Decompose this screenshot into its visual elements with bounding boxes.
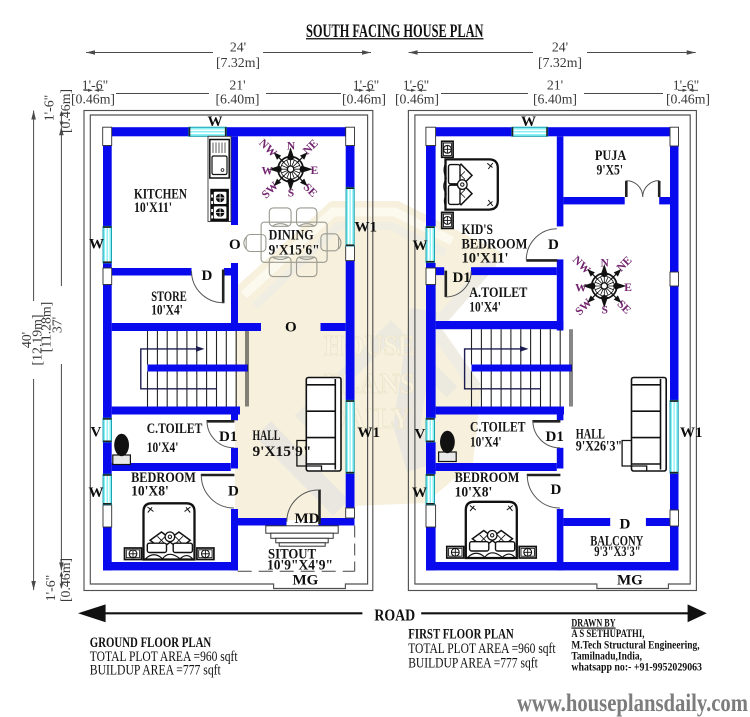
svg-text:[7.32m]: [7.32m]	[538, 55, 582, 70]
svg-text:whatsapp no:- +91-9952029063: whatsapp no:- +91-9952029063	[571, 660, 702, 674]
svg-text:[7.32m]: [7.32m]	[216, 55, 260, 70]
svg-text:N: N	[287, 141, 296, 153]
svg-text:10'X8': 10'X8'	[131, 484, 169, 500]
svg-text:W: W	[89, 485, 104, 501]
svg-text:MG: MG	[617, 573, 643, 589]
svg-text:S: S	[288, 188, 294, 200]
svg-text:[11.28m]: [11.28m]	[39, 302, 54, 352]
svg-text:BUILDUP AREA =777 sqft: BUILDUP AREA =777 sqft	[408, 655, 538, 672]
svg-text:1'-6": 1'-6"	[42, 95, 57, 122]
svg-text:W: W	[413, 238, 428, 254]
svg-text:W: W	[521, 114, 536, 130]
svg-text:C.TOILET: C.TOILET	[470, 420, 526, 436]
svg-text:D: D	[548, 237, 559, 253]
svg-text:9'X5': 9'X5'	[597, 163, 624, 179]
svg-text:1'-6": 1'-6"	[82, 78, 109, 93]
svg-text:MG: MG	[293, 573, 319, 589]
svg-text:D: D	[620, 517, 631, 533]
svg-text:10'X4': 10'X4'	[151, 303, 183, 319]
svg-text:W: W	[575, 282, 587, 294]
svg-text:ROAD: ROAD	[374, 606, 415, 625]
svg-text:9'X15'9": 9'X15'9"	[253, 444, 312, 460]
svg-text:24': 24'	[230, 40, 246, 55]
svg-text:10'X4': 10'X4'	[147, 440, 179, 456]
svg-text:21': 21'	[229, 78, 245, 93]
svg-text:DINING: DINING	[269, 228, 314, 244]
svg-text:W: W	[261, 166, 273, 178]
svg-text:[6.40m]: [6.40m]	[215, 92, 259, 107]
svg-text:MD: MD	[295, 511, 320, 527]
svg-text:V: V	[415, 427, 426, 443]
svg-text:1'-6": 1'-6"	[43, 575, 58, 602]
svg-text:W1: W1	[358, 425, 381, 441]
svg-text:W1: W1	[355, 220, 378, 236]
svg-text:W: W	[89, 237, 104, 253]
svg-text:HOUSE: HOUSE	[324, 330, 415, 362]
svg-text:D: D	[551, 482, 562, 498]
svg-text:10'X8': 10'X8'	[455, 485, 493, 501]
svg-text:10'X11': 10'X11'	[462, 251, 509, 267]
svg-text:21': 21'	[547, 78, 563, 93]
svg-text:BEDROOM: BEDROOM	[455, 470, 520, 486]
svg-text:N: N	[601, 257, 610, 269]
svg-text:W1: W1	[680, 425, 703, 441]
svg-text:O: O	[229, 237, 241, 253]
svg-text:D1: D1	[546, 429, 564, 445]
svg-text:W: W	[412, 485, 427, 501]
svg-text:D: D	[202, 268, 213, 284]
svg-text:1'-6": 1'-6"	[403, 78, 430, 93]
svg-text:www.houseplansdaily.com: www.houseplansdaily.com	[517, 688, 748, 717]
svg-text:V: V	[91, 425, 102, 441]
svg-text:10'X11': 10'X11'	[134, 200, 172, 216]
svg-text:[0.46m]: [0.46m]	[71, 92, 115, 107]
svg-text:[0.46m]: [0.46m]	[395, 92, 439, 107]
svg-text:10'X4': 10'X4'	[469, 300, 501, 316]
svg-text:9'3"X3'3": 9'3"X3'3"	[594, 544, 640, 560]
svg-text:BUILDUP AREA =777 sqft: BUILDUP AREA =777 sqft	[90, 662, 222, 679]
svg-text:[0.46m]: [0.46m]	[58, 89, 73, 133]
svg-text:E: E	[624, 282, 632, 294]
svg-text:[6.40m]: [6.40m]	[533, 92, 577, 107]
svg-text:D1: D1	[219, 429, 237, 445]
svg-text:E: E	[311, 165, 319, 177]
svg-text:10'9"X4'9": 10'9"X4'9"	[267, 558, 333, 574]
svg-text:C.TOILET: C.TOILET	[147, 421, 203, 437]
svg-text:D1: D1	[453, 270, 471, 286]
svg-text:D: D	[228, 484, 239, 500]
svg-text:1'-6": 1'-6"	[673, 78, 700, 93]
svg-text:W: W	[208, 114, 223, 130]
svg-text:24': 24'	[552, 40, 568, 55]
svg-text:[0.46m]: [0.46m]	[58, 558, 73, 602]
svg-text:9'X15'6": 9'X15'6"	[269, 243, 320, 259]
svg-text:10'X4': 10'X4'	[470, 435, 502, 451]
svg-text:[0.46m]: [0.46m]	[342, 92, 386, 107]
svg-text:O: O	[285, 320, 297, 336]
svg-text:S: S	[601, 304, 607, 316]
svg-text:9'X26'3": 9'X26'3"	[576, 439, 622, 455]
svg-text:1'-6": 1'-6"	[353, 78, 380, 93]
svg-text:[0.46m]: [0.46m]	[666, 92, 710, 107]
svg-text:HALL: HALL	[253, 428, 281, 444]
